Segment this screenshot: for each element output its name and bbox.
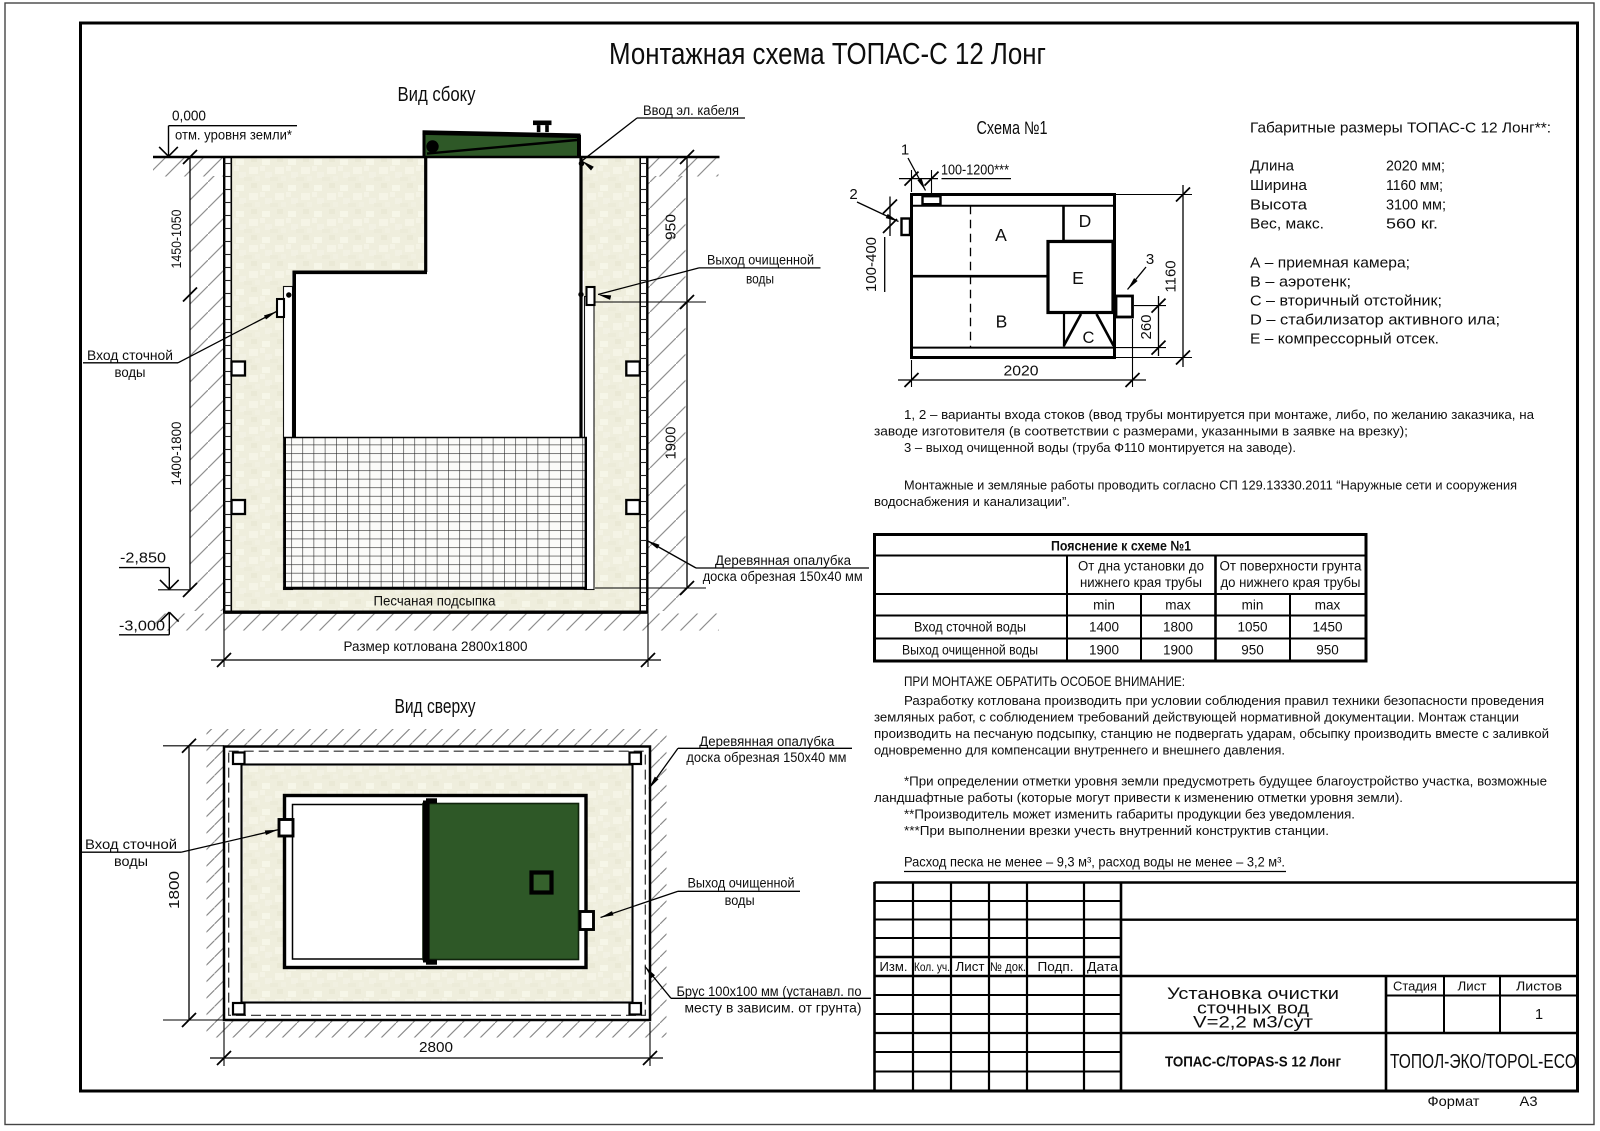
svg-text:D – стабилизатор активного ила: D – стабилизатор активного ила; — [1250, 312, 1500, 329]
svg-text:3100 мм;: 3100 мм; — [1386, 196, 1446, 213]
svg-text:**Производитель может изменить: **Производитель может изменить габариты … — [904, 807, 1355, 822]
svg-text:Разработку котлована производи: Разработку котлована производить при усл… — [904, 693, 1544, 708]
svg-text:Габаритные размеры ТОПАС-С 12: Габаритные размеры ТОПАС-С 12 Лонг**: — [1250, 120, 1551, 137]
svg-text:Монтажная схема ТОПАС-С 12 Лон: Монтажная схема ТОПАС-С 12 Лонг — [609, 36, 1046, 71]
svg-text:3 – выход очищенной воды (труб: 3 – выход очищенной воды (труба Ф110 мон… — [904, 440, 1296, 455]
svg-text:С – вторичный отстойник;: С – вторичный отстойник; — [1250, 293, 1442, 310]
svg-text:Ширина: Ширина — [1250, 177, 1308, 194]
svg-text:ландшафтные работы (которые мо: ландшафтные работы (которые могут привес… — [874, 790, 1403, 805]
svg-text:земляных работ, с соблюдением: земляных работ, с соблюдением требований… — [874, 710, 1519, 725]
svg-text:***При выполнении врезки учест: ***При выполнении врезки учесть внутренн… — [904, 823, 1329, 838]
svg-text:Е – компрессорный отсек.: Е – компрессорный отсек. — [1250, 331, 1439, 348]
svg-text:560 кг.: 560 кг. — [1386, 216, 1438, 233]
svg-text:ПРИ МОНТАЖЕ ОБРАТИТЬ ОСОБОЕ ВН: ПРИ МОНТАЖЕ ОБРАТИТЬ ОСОБОЕ ВНИМАНИЕ: — [904, 674, 1185, 689]
svg-text:одновременно для компенсации в: одновременно для компенсации внутреннего… — [874, 743, 1285, 758]
svg-text:В – аэротенк;: В – аэротенк; — [1250, 274, 1351, 291]
svg-text:Высота: Высота — [1250, 196, 1308, 213]
svg-text:Длина: Длина — [1250, 158, 1295, 175]
svg-text:Монтажные и земляные работы пр: Монтажные и земляные работы проводить со… — [904, 478, 1517, 493]
svg-text:1, 2 – варианты входа стоков: 1, 2 – варианты входа стоков (ввод трубы… — [904, 407, 1535, 422]
svg-text:А – приемная камера;: А – приемная камера; — [1250, 255, 1410, 272]
svg-text:2020 мм;: 2020 мм; — [1386, 158, 1445, 175]
svg-text:Вес, макс.: Вес, макс. — [1250, 216, 1324, 233]
svg-text:*При определении отметки уровн: *При определении отметки уровня земли пр… — [904, 774, 1547, 789]
svg-text:Расход песка не менее – 9,3 м³: Расход песка не менее – 9,3 м³, расход в… — [904, 855, 1285, 870]
svg-text:производить на песчаную подсып: производить на песчаную подсыпку, станци… — [874, 726, 1549, 741]
svg-text:заводе изготовителя (в соответ: заводе изготовителя (в соответствии с ра… — [874, 424, 1408, 439]
svg-text:водоснабжения и канализации”.: водоснабжения и канализации”. — [874, 494, 1070, 509]
svg-text:1160 мм;: 1160 мм; — [1386, 177, 1443, 194]
